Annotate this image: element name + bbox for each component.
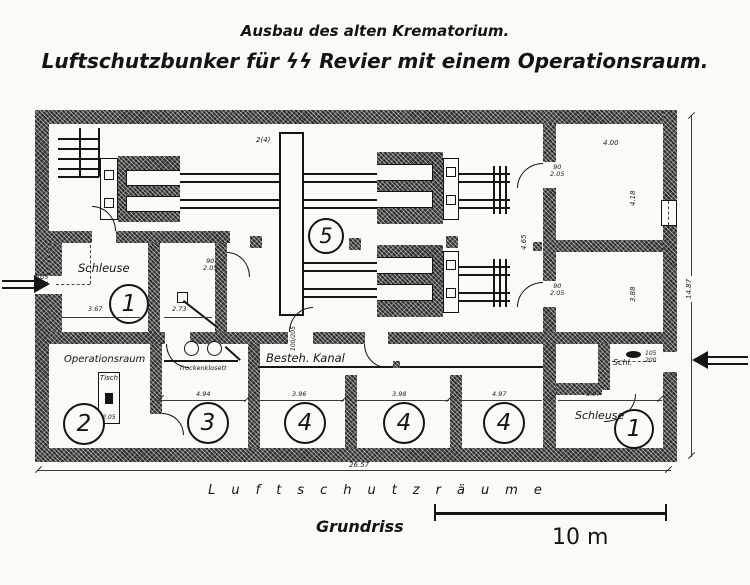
room-number-ofenhalle: 5 [308,218,344,254]
overall-dimension-line [38,470,671,471]
wall-segment [450,375,462,448]
dimension-line [62,317,140,318]
wall-segment [35,110,49,276]
door-size-left-entrance: 105 204 [36,274,48,288]
dimension-text: 4.97 [492,391,506,398]
scale-bar-tick [434,504,436,521]
rail-line [304,288,377,290]
rail-line [304,262,377,264]
stair-step [58,168,98,170]
furnace-door [446,260,456,270]
furnace-muffle [126,170,180,186]
kanal-shaft [393,361,400,368]
dimension-text: 3.67 [88,306,102,313]
wall-segment [388,332,663,344]
rail-end-tick [493,259,495,307]
wall-segment [345,375,357,448]
sheet-title-line2: Luftschutzbunker für ϟϟ Revier mit einem… [0,49,750,73]
closet-label: Schl. [613,359,632,367]
dimension-text: 2.73 [172,306,186,313]
wall-segment [543,188,556,281]
door-size: 90 2.05 [550,283,564,297]
door-size: 100/205 [291,326,298,351]
door-size-right-entrance: 105 200 [645,351,656,364]
door-size: 90 2.05 [550,164,564,178]
dimension-text: 4.65 [521,234,529,250]
dimension-line [164,317,212,318]
furnace-door [446,195,456,205]
rail-line [304,296,377,298]
wall-segment [313,332,365,344]
room-number-schutzraum-b: 4 [383,402,425,444]
toilet-icon [184,341,199,356]
furnace-door [104,198,114,208]
door-size-height: 204 [36,281,48,288]
kanal-line [258,366,543,368]
door-size: 90 2.05 [203,258,217,272]
niche-dash [668,201,669,225]
furnace-body [377,245,443,317]
wall-segment [49,332,165,344]
door-arc [227,252,250,277]
furnace-muffle [126,196,180,212]
kanal-label: Besteh. Kanal [266,352,345,364]
rail-end-tick [499,259,501,307]
scale-label: 10 m [552,526,608,549]
door-size-height: 2.05 [550,171,564,178]
furnace-body [118,156,180,222]
rail-end-tick [505,259,507,307]
door-arc [517,282,543,307]
rail-line [459,207,510,209]
dimension-text: 4.18 [630,190,638,206]
room-number-schutzraum-c: 4 [483,402,525,444]
dimension-text: 4.00 [603,140,619,148]
rail-end-tick [493,166,495,214]
stair-step [58,158,98,160]
pillar [446,236,458,248]
door-arc [364,344,387,368]
dimension-tick [688,452,695,459]
dimension-line [162,400,246,401]
operating-table-label: Tisch [100,375,118,382]
dimension-line [260,400,344,401]
overall-height-text: 14.87 [686,276,694,302]
rail-line [304,270,377,272]
scale-bar [434,512,667,515]
path-guide-line [56,284,90,285]
room-label-trockenklosett: Trockenklosett [179,365,227,372]
hall-note: 2(4) [256,137,270,144]
toilet-icon [207,341,222,356]
wall-segment [663,110,677,352]
door-arc [517,163,543,188]
wall-segment [148,243,160,332]
pillar [533,242,542,251]
floor-plan-sheet: Ausbau des alten Krematorium. Luftschutz… [0,0,750,585]
wall-segment [543,124,556,162]
furnace-muffle [377,257,433,274]
entrance-arrow-icon [692,351,708,369]
room-label-schleuse-left: Schleuse [78,262,130,274]
dimension-text: 3.96 [292,391,306,398]
entrance-arrow-shaft [2,280,36,282]
room-label-operationsraum: Operationsraum [64,355,145,366]
dimension-line [558,400,662,401]
dimension-line [462,400,542,401]
rail-line [459,173,510,175]
wall-segment [543,307,556,448]
rail-line [459,300,510,302]
furnace-muffle [377,164,433,181]
wall-segment [150,344,162,414]
rail-line [459,266,510,268]
stair-step [58,148,98,150]
scale-bar-tick [665,504,667,521]
dimension-text: 4.94 [196,391,210,398]
furnace-door [104,170,114,180]
rail-line [459,274,510,276]
pillar [349,238,361,250]
rail-line [459,292,510,294]
room-number-schutzraum-a: 4 [284,402,326,444]
wall-segment [190,332,288,344]
wall-segment [556,240,663,252]
stall-door-line [225,346,241,360]
wall-segment [49,231,92,243]
stall-partition [164,360,238,362]
stove-flue-line [183,300,219,328]
caption-grundriss: Grundriss [316,519,404,536]
rail-end-tick [505,166,507,214]
wall-segment [49,243,62,276]
wall-segment [35,110,677,124]
entrance-arrow-shaft [2,287,36,289]
room-number-trockenklosett: 3 [187,402,229,444]
rail-line [459,181,510,183]
door-size-height: 2.05 [203,265,217,272]
sheet-title-line1: Ausbau des alten Krematorium. [0,22,750,40]
sink-icon [626,351,641,358]
rail-line [459,199,510,201]
entrance-arrow-shaft [708,363,748,365]
furnace-door [446,288,456,298]
wall-niche [661,200,677,226]
furnace-body [377,152,443,224]
room-number-operationsraum: 2 [63,403,105,445]
wall-segment [663,372,677,462]
stair-stringer [79,128,81,177]
band-label: Luftschutzräume [0,484,750,498]
dimension-text: 5.97 [586,391,600,398]
chimney-duct [279,132,304,316]
wall-segment [116,231,230,243]
door-size-height: 2.05 [550,290,564,297]
dimension-text: 3.88 [630,286,638,302]
wall-segment [49,294,62,332]
furnace-muffle [377,284,433,301]
entrance-arrow-shaft [708,356,748,358]
pillar [250,236,262,248]
door-arc [162,413,184,435]
wall-segment [35,448,677,462]
room-label-schleuse-right: Schleuse [575,410,624,422]
room-number-schleuse-left: 1 [109,284,149,324]
dimension-text: 3.98 [392,391,406,398]
rail-end-tick [499,166,501,214]
overall-width-text: 26.57 [346,462,372,470]
table-symbol [105,393,113,404]
wall-segment [35,294,49,462]
furnace-door [446,167,456,177]
furnace-muffle [377,191,433,208]
wall-segment [215,243,227,332]
dimension-line [357,400,449,401]
stair-step [58,138,98,140]
door-size-height: 200 [645,358,656,365]
